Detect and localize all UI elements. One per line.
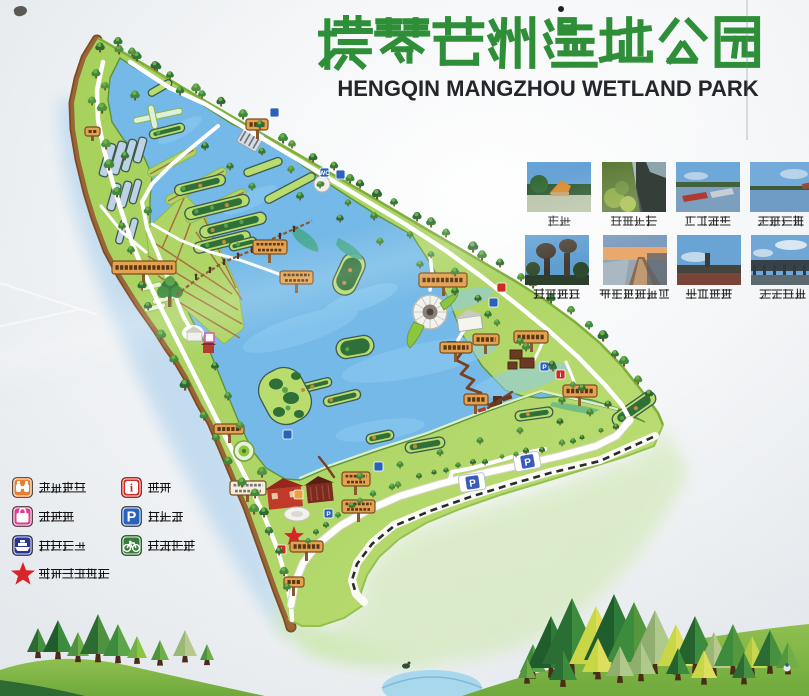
- svg-text:P: P: [542, 364, 547, 371]
- svg-text:P: P: [326, 511, 331, 518]
- svg-text:WC: WC: [319, 170, 330, 177]
- svg-text:i: i: [560, 372, 562, 379]
- svg-text:P: P: [127, 510, 137, 526]
